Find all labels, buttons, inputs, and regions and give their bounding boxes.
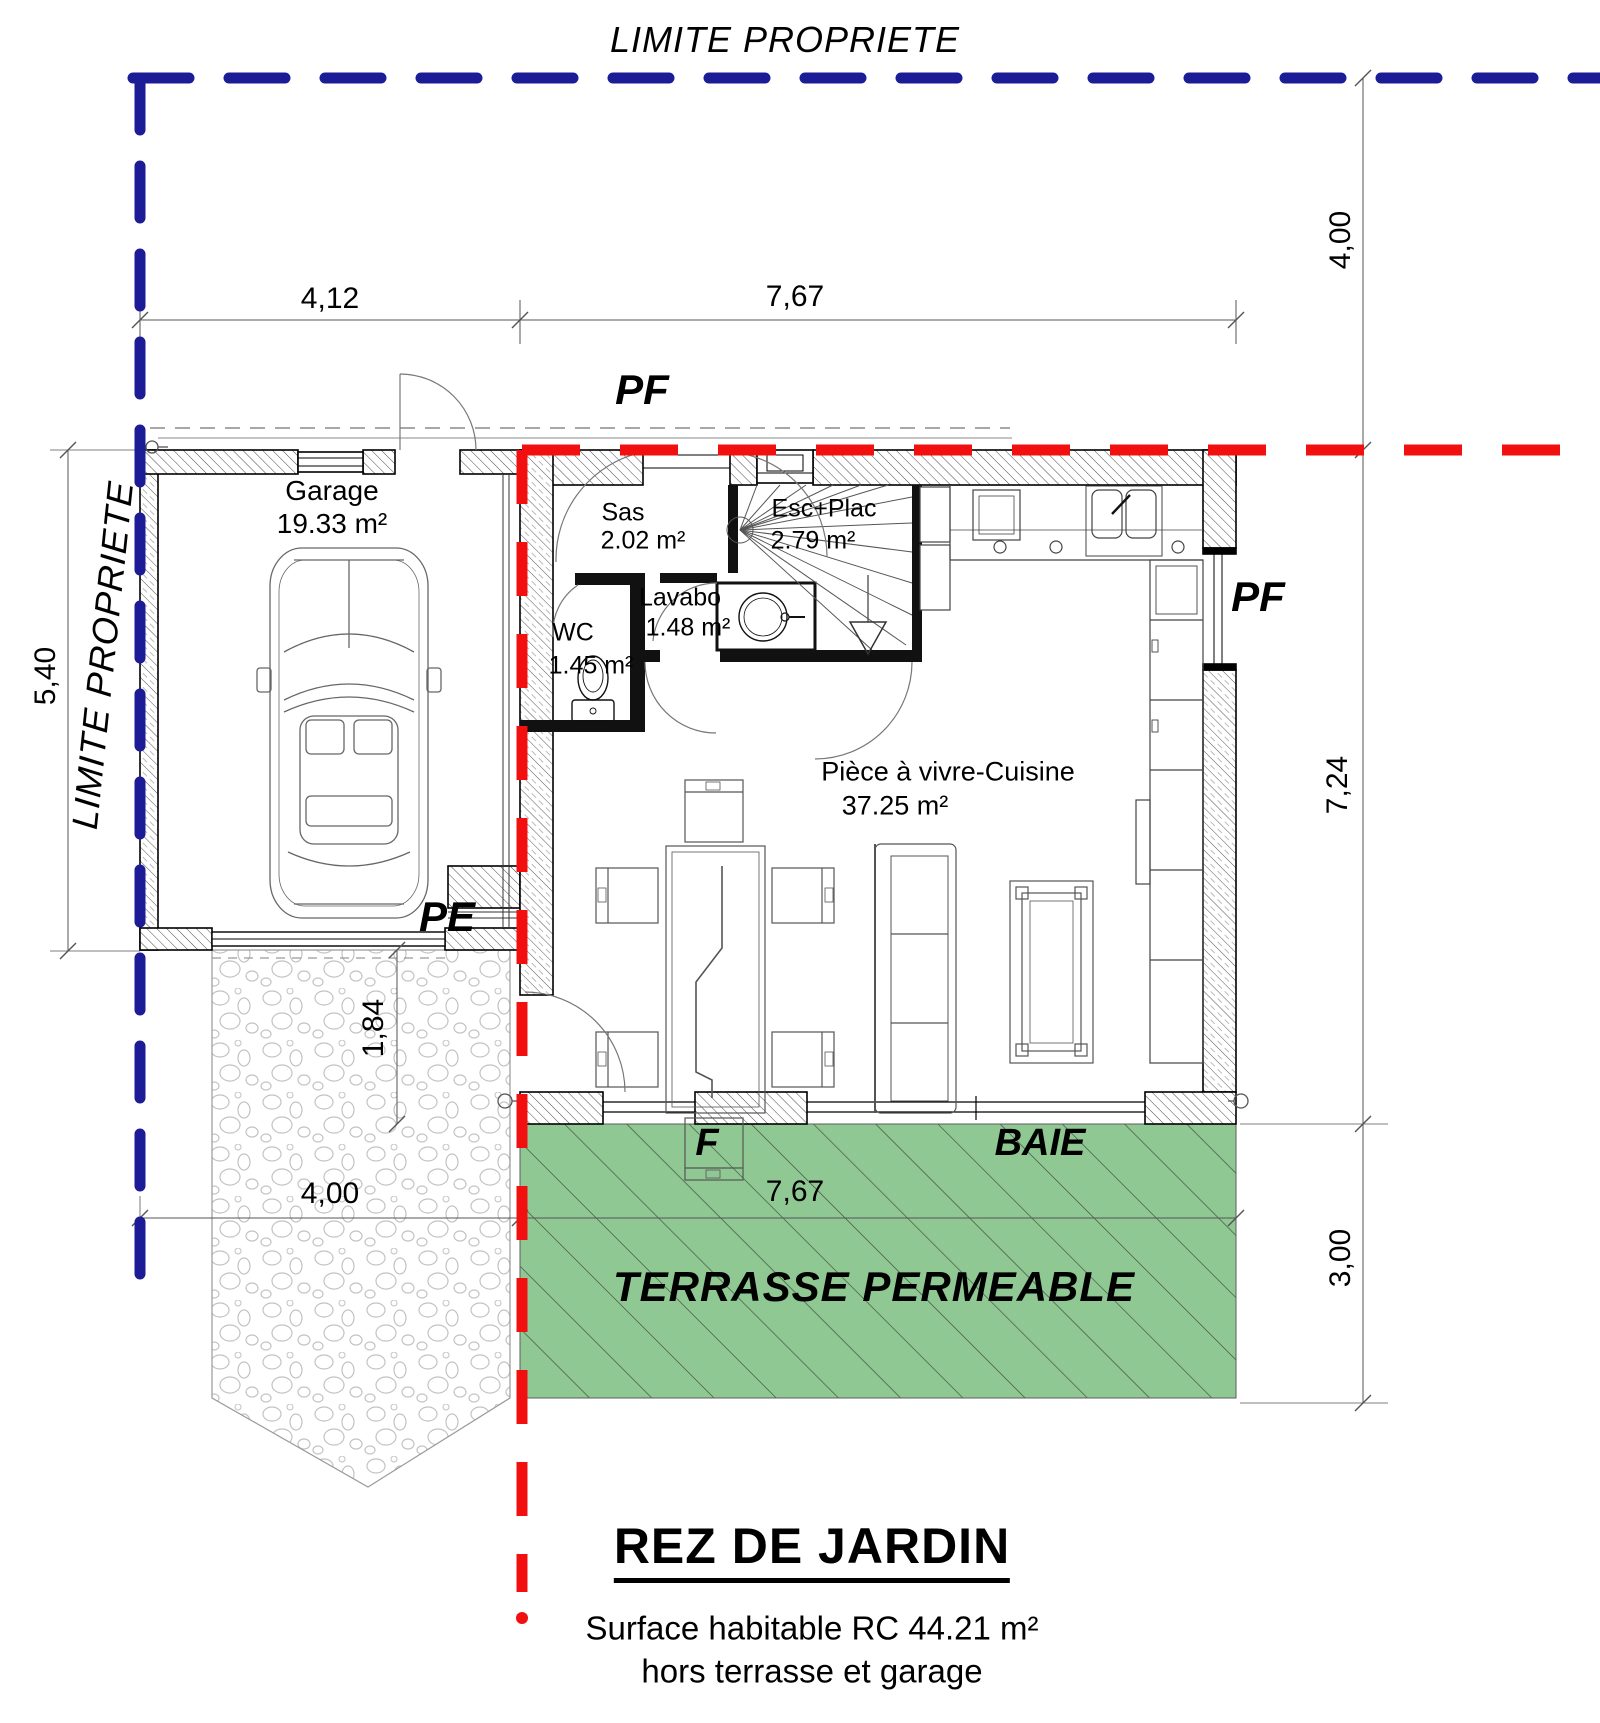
dim-path-width: 1,84 xyxy=(359,999,389,1057)
upper-floor-outline xyxy=(150,428,1012,438)
dim-driveway-width: 4,00 xyxy=(301,1179,359,1209)
room-area-sas: 2.02 m² xyxy=(601,529,686,554)
dim-setback-top: 4,00 xyxy=(1326,211,1356,269)
dim-house-width-top: 7,67 xyxy=(766,282,824,312)
opening-label-baie: BAIE xyxy=(995,1124,1086,1162)
washbasin-icon xyxy=(717,583,815,650)
dim-terrace-width: 7,67 xyxy=(766,1177,824,1207)
room-area-lavabo: 1.48 m² xyxy=(646,616,731,641)
room-area-garage: 19.33 m² xyxy=(277,510,388,538)
opening-label-f: F xyxy=(695,1124,718,1162)
plan-title: REZ DE JARDIN xyxy=(614,1521,1010,1583)
room-label-sas: Sas xyxy=(601,501,644,526)
terrace-label: TERRASSE PERMEABLE xyxy=(613,1266,1135,1308)
opening-label-pf-right: PF xyxy=(1231,576,1285,618)
room-label-esc-plac: Esc+Plac xyxy=(772,497,877,522)
garage-service-door-swing xyxy=(400,374,476,450)
room-label-wc: WC xyxy=(552,621,594,646)
room-label-living: Pièce à vivre-Cuisine xyxy=(821,759,1075,786)
car-illustration xyxy=(257,548,441,918)
terrace-green-area xyxy=(520,1124,1236,1398)
room-area-living: 37.25 m² xyxy=(842,793,949,820)
dim-terrace-depth: 3,00 xyxy=(1326,1229,1356,1287)
surface-note-line1: Surface habitable RC 44.21 m² xyxy=(585,1612,1038,1645)
floor-plan-drawing xyxy=(0,0,1600,1723)
opening-label-pe: PE xyxy=(419,896,475,938)
room-area-esc-plac: 2.79 m² xyxy=(771,529,856,554)
surface-note-line2: hors terrasse et garage xyxy=(641,1655,982,1688)
dim-garage-depth: 5,40 xyxy=(31,647,61,705)
opening-label-pf-top: PF xyxy=(615,369,669,411)
coffee-table-icon xyxy=(1010,881,1093,1063)
floor-plan-page: LIMITE PROPRIETE LIMITE PROPRIETE 4,12 7… xyxy=(0,0,1600,1723)
dim-house-depth: 7,24 xyxy=(1323,756,1353,814)
boundary-label-top: LIMITE PROPRIETE xyxy=(610,22,960,58)
room-label-lavabo: Lavabo xyxy=(639,586,721,611)
room-area-wc: 1.45 m² xyxy=(549,654,634,679)
room-label-garage: Garage xyxy=(285,477,378,505)
dim-garage-width: 4,12 xyxy=(301,284,359,314)
sofa-icon xyxy=(875,844,956,1113)
